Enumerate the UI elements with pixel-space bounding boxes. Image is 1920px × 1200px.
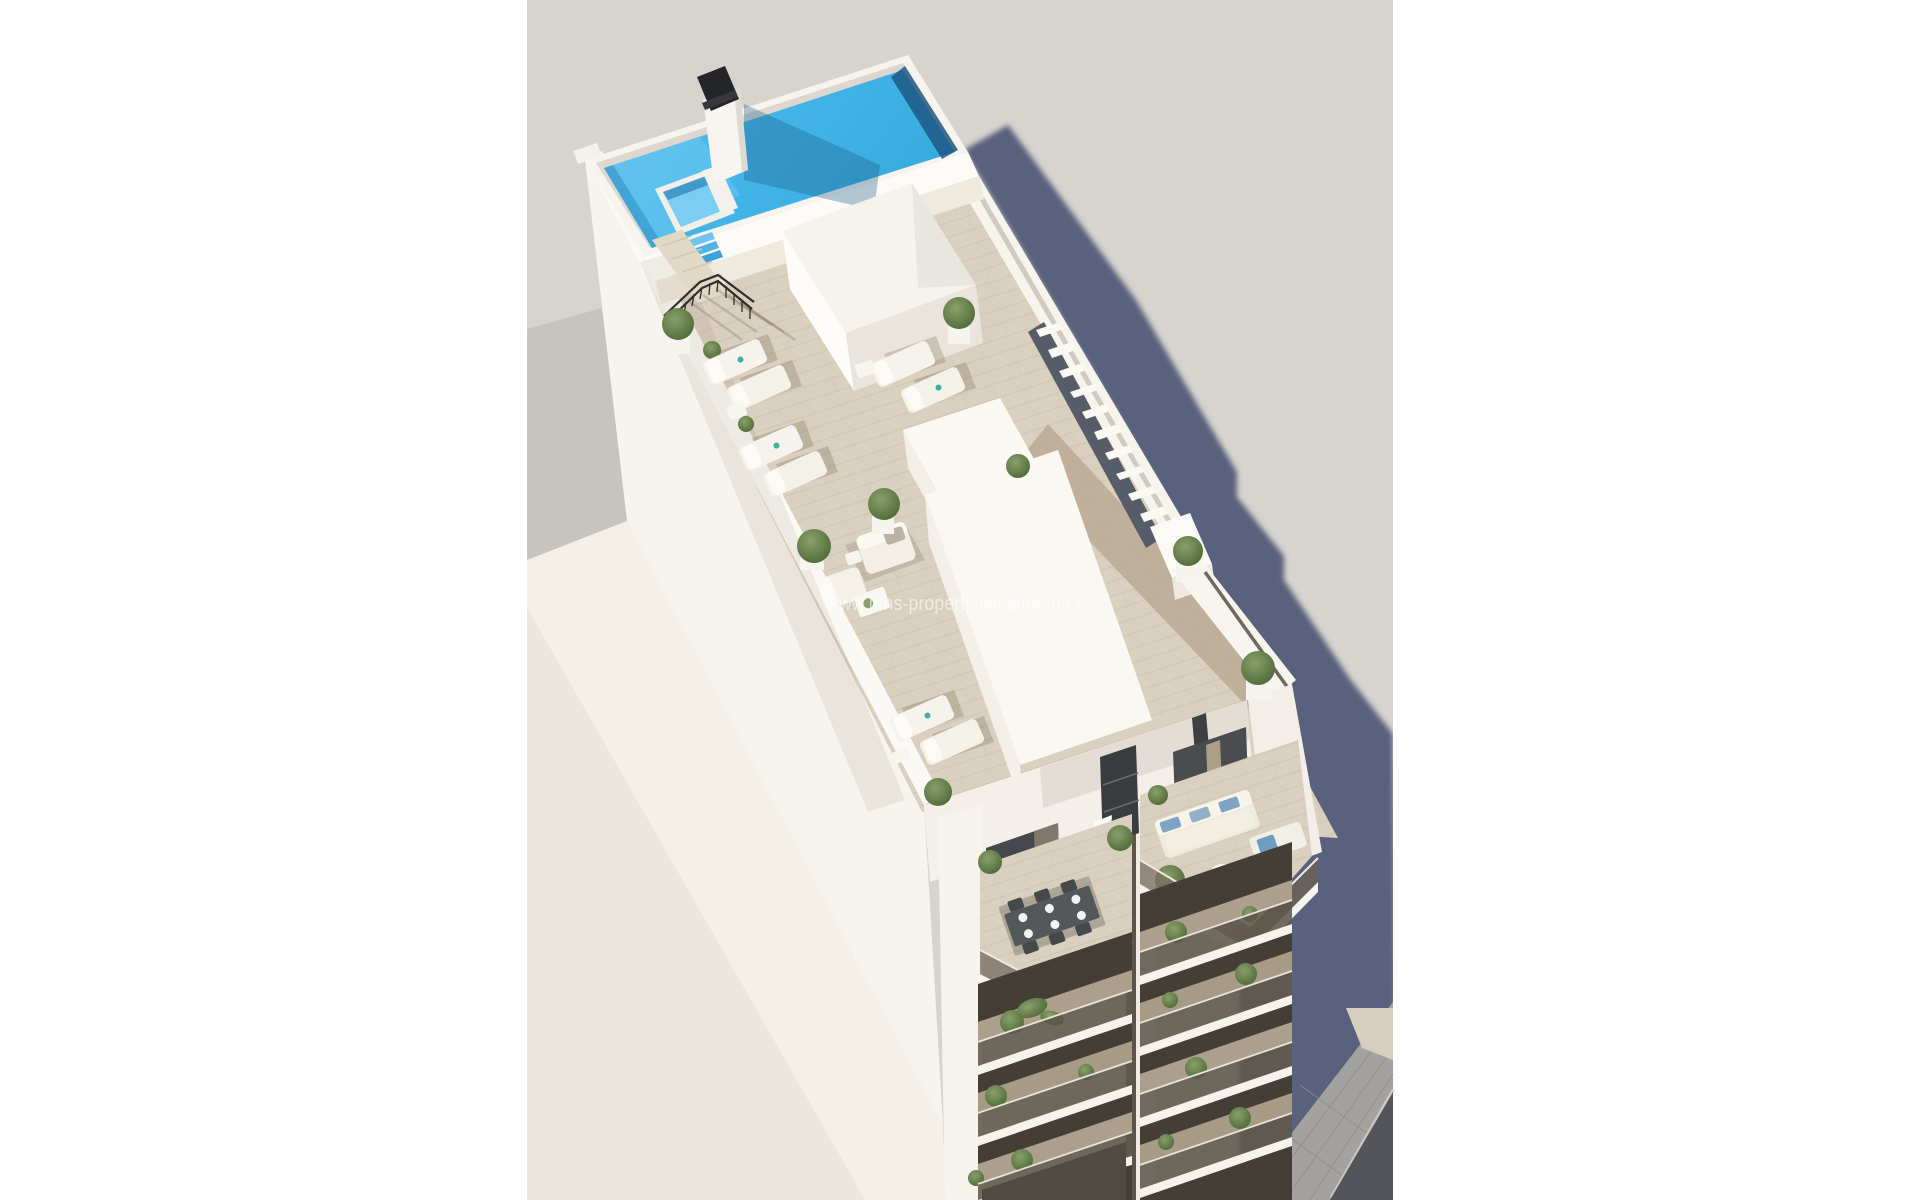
svg-text:www.mhs-propertyinvestments.es: www.mhs-propertyinvestments.es bbox=[825, 593, 1094, 615]
